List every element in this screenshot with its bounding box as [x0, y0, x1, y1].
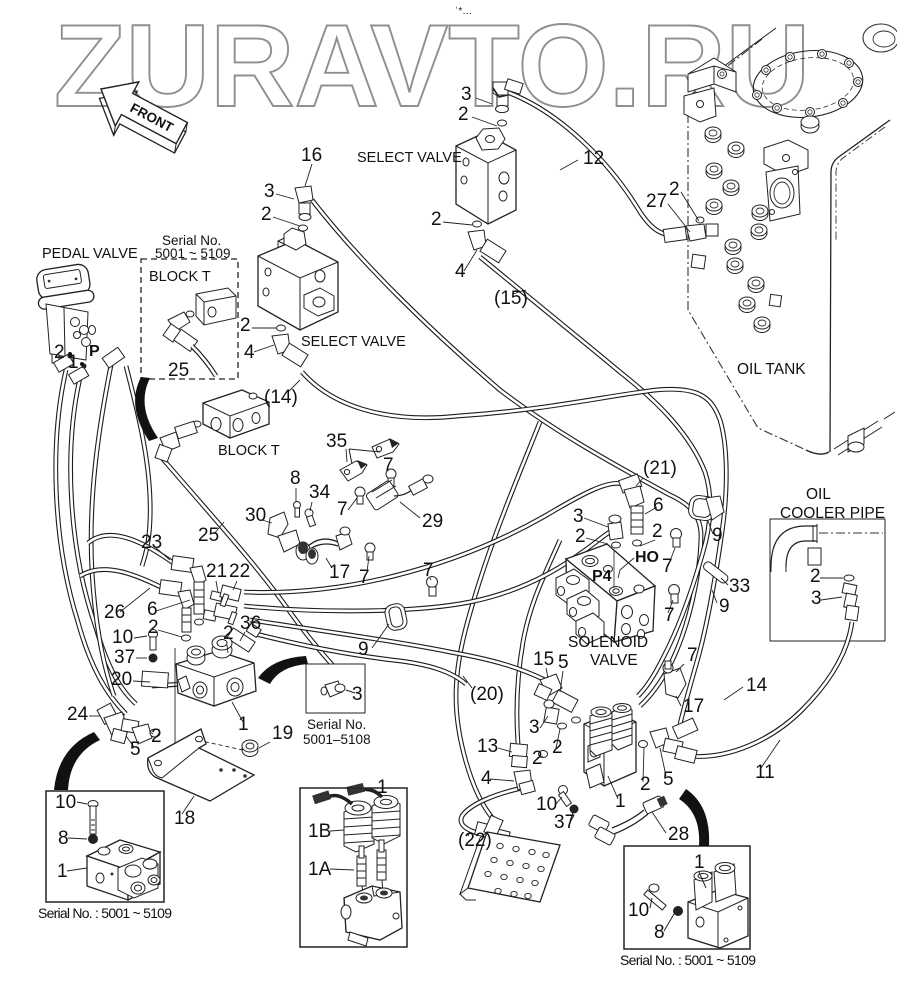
svg-text:COOLER PIPE: COOLER PIPE: [780, 505, 885, 522]
svg-text:9: 9: [358, 639, 369, 660]
svg-text:2: 2: [148, 617, 159, 638]
svg-text:SELECT VALVE: SELECT VALVE: [357, 150, 462, 166]
svg-text:4: 4: [481, 768, 492, 789]
svg-text:2: 2: [240, 315, 251, 336]
svg-text:1: 1: [238, 714, 249, 735]
svg-text:11: 11: [755, 762, 775, 783]
svg-text:(14): (14): [264, 387, 298, 408]
svg-text:17: 17: [329, 562, 350, 583]
svg-text:2: 2: [151, 726, 162, 747]
svg-text:7: 7: [337, 499, 348, 520]
svg-text:(22): (22): [458, 830, 492, 851]
svg-text:8: 8: [58, 828, 69, 849]
svg-text:2: 2: [669, 179, 680, 200]
svg-text:36: 36: [240, 613, 261, 634]
svg-text:5: 5: [558, 652, 569, 673]
svg-text:12: 12: [583, 148, 604, 169]
svg-text:16: 16: [301, 145, 322, 166]
svg-text:ʾ*…: ʾ*…: [455, 5, 472, 17]
svg-text:3: 3: [573, 506, 584, 527]
svg-text:(21): (21): [643, 458, 677, 479]
svg-text:18: 18: [174, 808, 195, 829]
svg-text:2: 2: [261, 204, 272, 225]
svg-text:15: 15: [533, 649, 554, 670]
svg-text:VALVE: VALVE: [590, 652, 638, 669]
svg-text:2: 2: [652, 521, 663, 542]
svg-text:3: 3: [352, 684, 363, 705]
svg-text:20: 20: [111, 669, 132, 690]
svg-text:BLOCK T: BLOCK T: [218, 443, 280, 459]
svg-text:5: 5: [663, 769, 674, 790]
svg-text:HO: HO: [635, 549, 659, 566]
svg-text:Serial No.: Serial No.: [307, 717, 366, 732]
svg-text:Serial No. : 5001 ~ 5109: Serial No. : 5001 ~ 5109: [38, 905, 172, 921]
svg-text:37: 37: [554, 812, 575, 833]
svg-text:22: 22: [229, 561, 250, 582]
svg-text:1: 1: [57, 861, 68, 882]
svg-text:3: 3: [461, 84, 472, 105]
svg-text:(15): (15): [494, 288, 528, 309]
svg-text:3: 3: [811, 588, 822, 609]
svg-text:10: 10: [55, 792, 76, 813]
svg-text:1A: 1A: [308, 859, 332, 880]
svg-text:34: 34: [309, 482, 331, 503]
svg-text:OIL TANK: OIL TANK: [737, 361, 806, 378]
svg-text:2: 2: [431, 209, 442, 230]
svg-text:Serial No. : 5001 ~ 5109: Serial No. : 5001 ~ 5109: [620, 952, 756, 968]
svg-text:3: 3: [264, 181, 275, 202]
svg-text:P4: P4: [592, 568, 612, 585]
svg-text:1: 1: [615, 791, 626, 812]
svg-text:23: 23: [141, 532, 162, 553]
svg-text:25: 25: [198, 525, 219, 546]
svg-text:8: 8: [654, 922, 665, 943]
svg-text:29: 29: [422, 511, 443, 532]
svg-text:2: 2: [810, 566, 821, 587]
svg-text:37: 37: [114, 647, 135, 668]
svg-text:7: 7: [423, 560, 434, 581]
svg-text:3: 3: [529, 717, 540, 738]
svg-text:4: 4: [244, 342, 255, 363]
svg-text:4: 4: [455, 261, 466, 282]
svg-text:30: 30: [245, 505, 266, 526]
svg-text:21: 21: [206, 561, 227, 582]
svg-text:OIL: OIL: [806, 486, 831, 503]
svg-text:9: 9: [712, 525, 723, 546]
svg-text:1: 1: [694, 852, 705, 873]
svg-text:1: 1: [377, 777, 388, 798]
svg-text:6: 6: [653, 495, 664, 516]
svg-text:2: 2: [54, 342, 65, 363]
svg-text:SOLENOID: SOLENOID: [568, 634, 648, 651]
svg-text:17: 17: [683, 696, 704, 717]
svg-text:28: 28: [668, 824, 689, 845]
svg-text:7: 7: [687, 645, 698, 666]
svg-text:7: 7: [662, 556, 673, 577]
svg-text:2: 2: [640, 774, 651, 795]
svg-text:(20): (20): [470, 684, 504, 705]
svg-text:10: 10: [112, 627, 133, 648]
svg-text:2: 2: [458, 104, 469, 125]
svg-text:8: 8: [290, 468, 301, 489]
svg-text:10: 10: [628, 900, 649, 921]
svg-text:5: 5: [130, 739, 141, 760]
svg-text:25: 25: [168, 360, 189, 381]
svg-text:24: 24: [67, 704, 89, 725]
svg-text:35: 35: [326, 431, 347, 452]
svg-text:P: P: [89, 343, 100, 360]
svg-text:14: 14: [746, 675, 768, 696]
svg-text:7: 7: [664, 605, 675, 626]
svg-text:7: 7: [383, 455, 394, 476]
svg-text:PEDAL VALVE: PEDAL VALVE: [42, 246, 138, 262]
svg-text:SELECT VALVE: SELECT VALVE: [301, 334, 406, 350]
svg-text:1B: 1B: [308, 821, 331, 842]
svg-text:26: 26: [104, 602, 125, 623]
svg-text:2: 2: [532, 748, 543, 769]
svg-text:2: 2: [223, 623, 234, 644]
svg-text:13: 13: [477, 736, 498, 757]
svg-text:33: 33: [729, 576, 750, 597]
svg-text:5001 ~ 5109: 5001 ~ 5109: [155, 246, 230, 261]
svg-text:7: 7: [359, 567, 370, 588]
svg-text:5001–5108: 5001–5108: [303, 732, 371, 747]
svg-text:9: 9: [719, 596, 730, 617]
svg-text:2: 2: [575, 526, 586, 547]
svg-text:BLOCK T: BLOCK T: [149, 269, 211, 285]
svg-text:2: 2: [552, 737, 563, 758]
svg-text:19: 19: [272, 723, 293, 744]
svg-text:27: 27: [646, 191, 667, 212]
